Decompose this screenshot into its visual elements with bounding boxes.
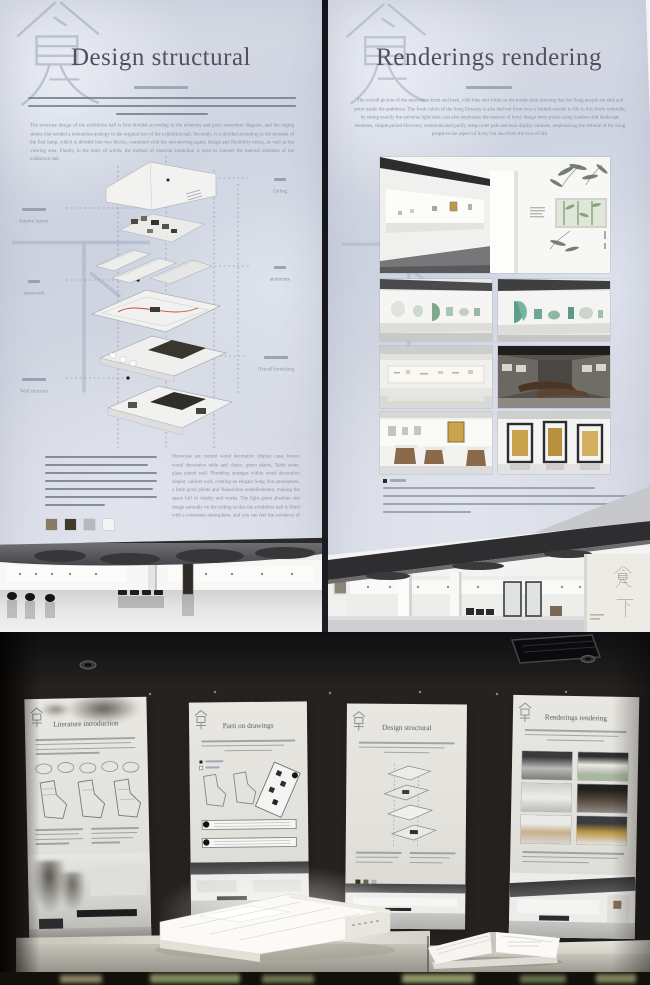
mini-poster-title: Renderings rendering <box>530 713 621 723</box>
diagram-floor-tray <box>92 290 220 332</box>
exploded-axonometric-diagram <box>0 150 322 470</box>
diagram-interior-layout <box>120 214 204 242</box>
swatch-gray <box>84 519 95 530</box>
mini-render-3 <box>521 783 572 812</box>
diagram-aluminum-panels <box>96 250 212 284</box>
swatch-dark-brown <box>65 519 76 530</box>
open-book <box>420 922 580 972</box>
diagram-furnishing-tray <box>108 386 232 435</box>
mini-render-5 <box>520 815 571 844</box>
label-ceiling: Ceiling <box>248 170 312 197</box>
floor-plan-drawings <box>193 759 304 856</box>
board-title: Design structural <box>0 44 322 72</box>
board-design-structural: Design structural The structure design o… <box>0 0 322 632</box>
mini-poster-title: Literature introduction <box>42 719 130 729</box>
diagram-wall-structure <box>100 336 226 382</box>
site-analysis-sketches <box>32 759 143 823</box>
label-aluminum: aluminum <box>248 258 312 285</box>
ceiling-fixtures <box>0 632 650 692</box>
diagram-ceiling-slab <box>106 162 216 210</box>
intro-paragraph-zh <box>28 97 296 121</box>
board-subtitle-zh <box>134 86 188 89</box>
label-overall-furnishing: Overall furnishing <box>244 348 308 375</box>
recessed-light-1 <box>80 661 96 669</box>
label-wall-structure: Wall structure <box>2 370 66 397</box>
swatch-brown <box>46 519 57 530</box>
architectural-model <box>140 876 410 968</box>
mini-exploded-diagram <box>364 762 449 849</box>
board-renderings: Renderings rendering The overall picture… <box>328 0 650 632</box>
material-swatches <box>46 517 118 535</box>
mini-render-1 <box>522 751 573 780</box>
mini-poster-title: Parti on drawings <box>206 722 291 731</box>
label-stonework: stonework <box>2 272 66 299</box>
gallery-installation-photo: Literature introduction <box>0 632 650 985</box>
mini-poster-title: Design structural <box>364 724 450 733</box>
portfolio-screenshot: Design structural The structure design o… <box>0 0 650 985</box>
recessed-light-2 <box>581 656 595 663</box>
wall-poster-literature-introduction: Literature introduction <box>24 697 151 951</box>
bottom-cropped-strip <box>0 972 650 985</box>
notes-en: Showcase are central wood decorative dis… <box>172 452 300 518</box>
swatch-white <box>103 519 114 530</box>
notes-zh <box>45 456 157 512</box>
label-interior-layout: Interior layout <box>2 200 66 227</box>
right-shadow-vignette <box>612 632 650 985</box>
left-shadow-vignette <box>0 632 40 985</box>
design-board-rendering-photo <box>0 536 322 632</box>
